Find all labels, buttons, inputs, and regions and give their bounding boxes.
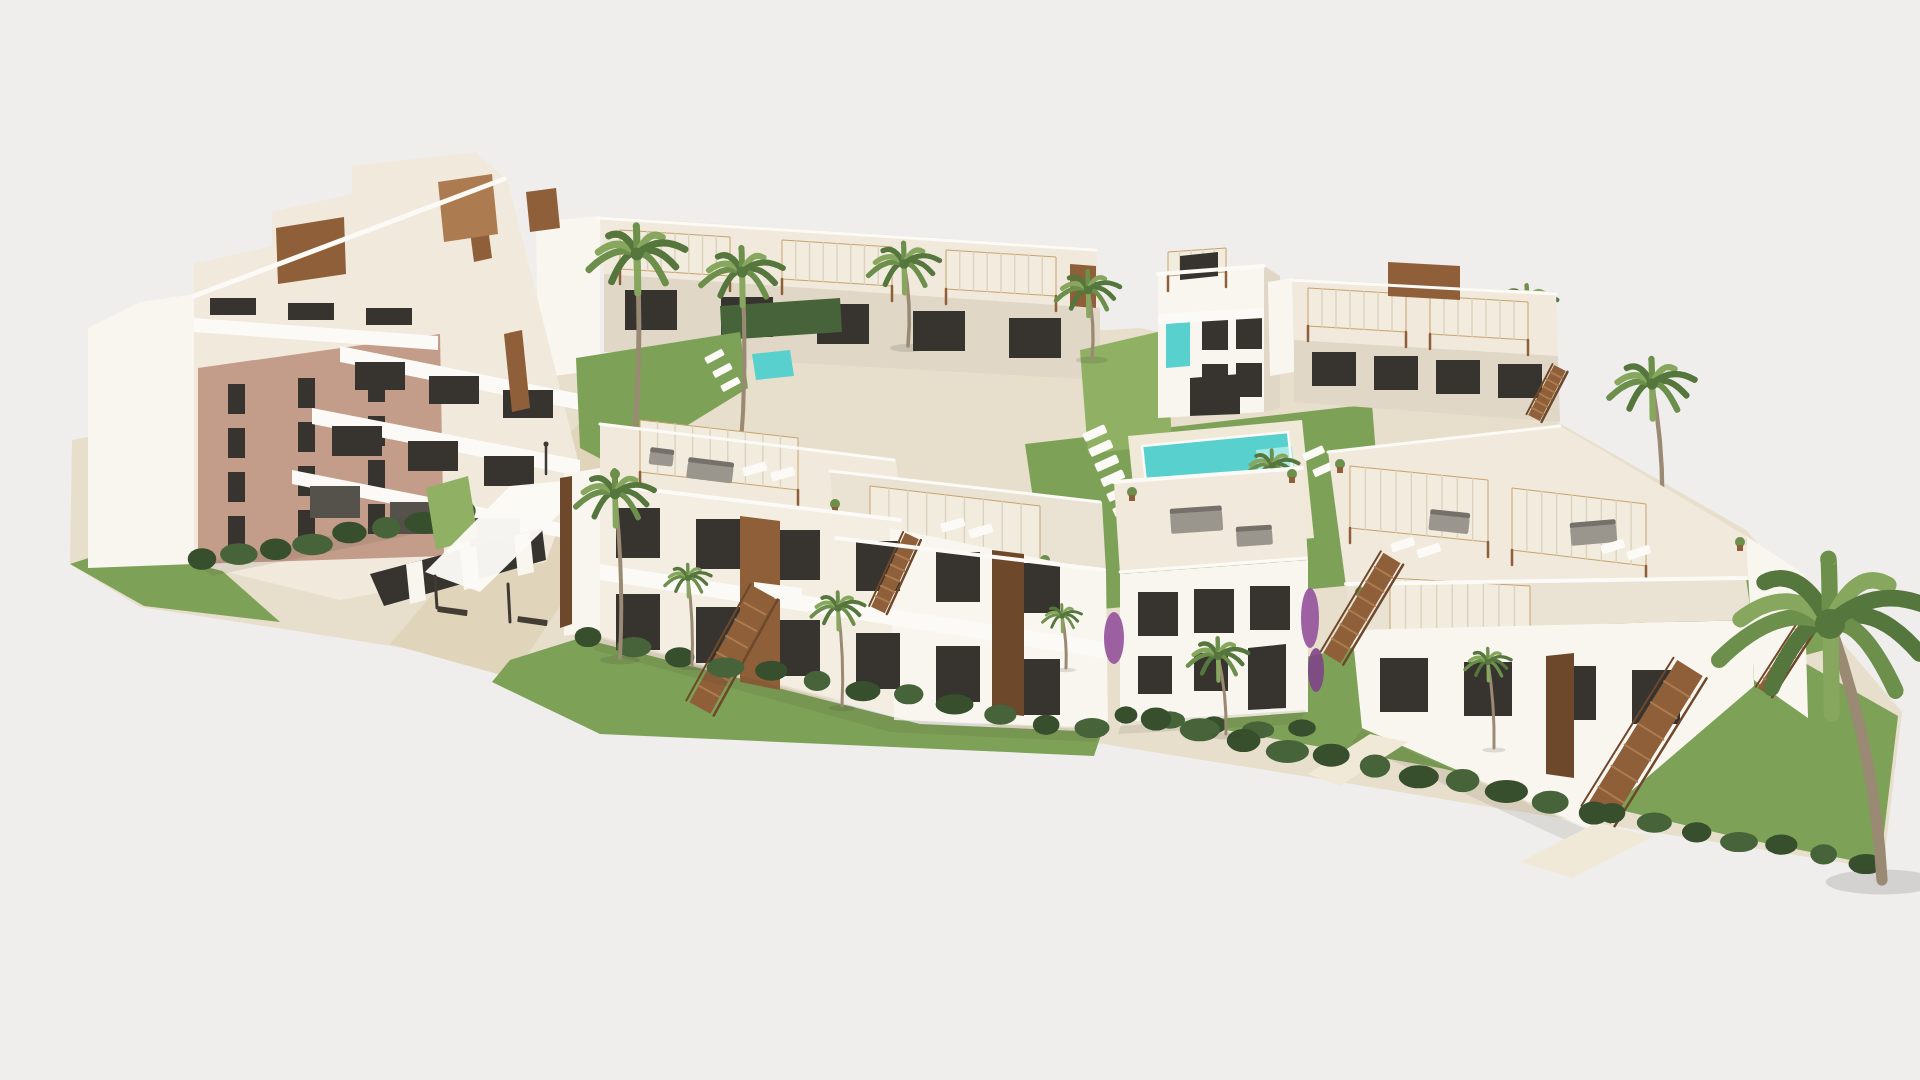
apartment-side-windows [228, 472, 245, 502]
apartment-side-windows [228, 384, 245, 414]
bougainvillea [1104, 612, 1124, 664]
hedge-bush [292, 534, 333, 556]
hedge-bush [845, 681, 880, 701]
hedge-bush [1360, 754, 1390, 777]
right-wood-post [1546, 653, 1574, 778]
tower-windows [1236, 315, 1262, 349]
penthouse-wood-box [526, 188, 560, 232]
apartment-side-windows [228, 428, 245, 458]
townhouse-glass-upper [936, 552, 980, 602]
hedge-bush [1115, 706, 1138, 723]
townhouse-gable-wood [560, 476, 572, 628]
palm-crown [1214, 652, 1222, 660]
palm-crown [1059, 613, 1064, 618]
hedge-bush [1485, 780, 1528, 803]
front-building-door [1248, 644, 1286, 710]
canopy-post [508, 584, 510, 622]
hedge-bush [936, 694, 974, 714]
back-row-windows [913, 311, 965, 351]
tower-teal-glass [1166, 322, 1190, 368]
palm-crown [610, 489, 621, 500]
tower-door [1190, 374, 1240, 416]
apartment-side-windows [298, 422, 315, 452]
hedge-bush [984, 705, 1016, 725]
hedge-bush [1810, 844, 1837, 864]
canopy-post [435, 576, 437, 608]
front-building-windows [1250, 586, 1290, 630]
apartment-side-windows [298, 378, 315, 408]
bougainvillea [1308, 648, 1324, 692]
palm-crown [834, 604, 841, 611]
hedge-bush [1075, 718, 1110, 738]
hedge-bush [260, 538, 292, 560]
hedge-bush [755, 661, 787, 681]
palm-crown [1485, 659, 1491, 665]
hedge-bush [707, 657, 745, 677]
hedge-bush [1227, 729, 1261, 752]
palm-crown [685, 575, 691, 581]
apartment-upper-glass [288, 303, 334, 320]
hedge-bush [188, 548, 217, 570]
apartment-upper-glass [366, 308, 412, 325]
apartment-glass-row [408, 441, 458, 471]
back-row-windows [625, 290, 677, 330]
right-back-windows [1436, 360, 1480, 394]
palm-crown [631, 248, 644, 261]
hedge-bush [575, 627, 602, 647]
townhouse-glass-upper [776, 530, 820, 580]
hedge-bush [1446, 769, 1480, 792]
right-back-wood-box [1388, 262, 1460, 300]
right-back-gable [1268, 278, 1294, 376]
scene-canvas [40, 16, 1920, 1080]
apartment-side-windows [228, 516, 245, 546]
palm-crown [1084, 286, 1093, 295]
hedge-bush [1288, 719, 1316, 736]
hedge-bush [665, 647, 694, 667]
palm-crown [1646, 378, 1658, 390]
front-building-windows [1138, 592, 1178, 636]
apartment-glass-row [310, 486, 360, 518]
palm-crown [899, 259, 909, 269]
architectural-render [40, 16, 1920, 1080]
front-building-windows [1194, 589, 1234, 633]
hedge-bush [1532, 791, 1569, 814]
mini-pool [752, 350, 794, 380]
potted-plant-pot [1337, 467, 1343, 473]
lamp-post-head [544, 442, 549, 447]
back-row-windows [1009, 318, 1061, 358]
hedge-bush [1399, 765, 1439, 788]
right-facade-glass [1380, 658, 1428, 712]
outdoor-sofa [1236, 529, 1273, 546]
townhouse-wood-panel [992, 550, 1024, 716]
right-back-windows [1312, 352, 1356, 386]
hedge-bush [1313, 744, 1350, 767]
outdoor-sofa [1170, 510, 1223, 534]
bougainvillea [1301, 588, 1319, 648]
hedge-bush [332, 522, 367, 544]
hedge-bush [894, 684, 923, 704]
townhouse-glass-lower [856, 633, 900, 689]
hedge-bush [1637, 813, 1672, 833]
apartment-glass-row [429, 376, 479, 404]
apartment-left-gable [88, 294, 194, 568]
hedge-bush [372, 517, 401, 539]
potted-plant-pot [1129, 495, 1135, 501]
apartment-glass-row [484, 456, 534, 486]
tower-roof-box [1180, 252, 1218, 280]
apartment-upper-glass [210, 298, 256, 315]
right-back-windows [1498, 364, 1542, 398]
hedge-bush [1141, 707, 1171, 730]
townhouse-glass-lower [936, 646, 980, 702]
townhouse-glass-upper [696, 519, 740, 569]
apartment-glass-row [355, 362, 405, 390]
palm-crown [736, 266, 747, 277]
palm-crown [1815, 609, 1845, 639]
hedge-bush [804, 671, 831, 691]
potted-plant-pot [1289, 477, 1295, 483]
apartment-glass-row [332, 426, 382, 456]
hedge-bush [1599, 803, 1626, 823]
hedge-bush [1765, 835, 1797, 855]
right-back-windows [1374, 356, 1418, 390]
potted-plant-pot [1737, 545, 1743, 551]
front-building-windows [1138, 656, 1172, 694]
hedge-bush [1720, 832, 1758, 852]
hedge-bush [1033, 715, 1060, 735]
hedge-bush [1682, 822, 1711, 842]
hedge-bush [220, 543, 258, 565]
hedge-bush [1266, 740, 1309, 763]
